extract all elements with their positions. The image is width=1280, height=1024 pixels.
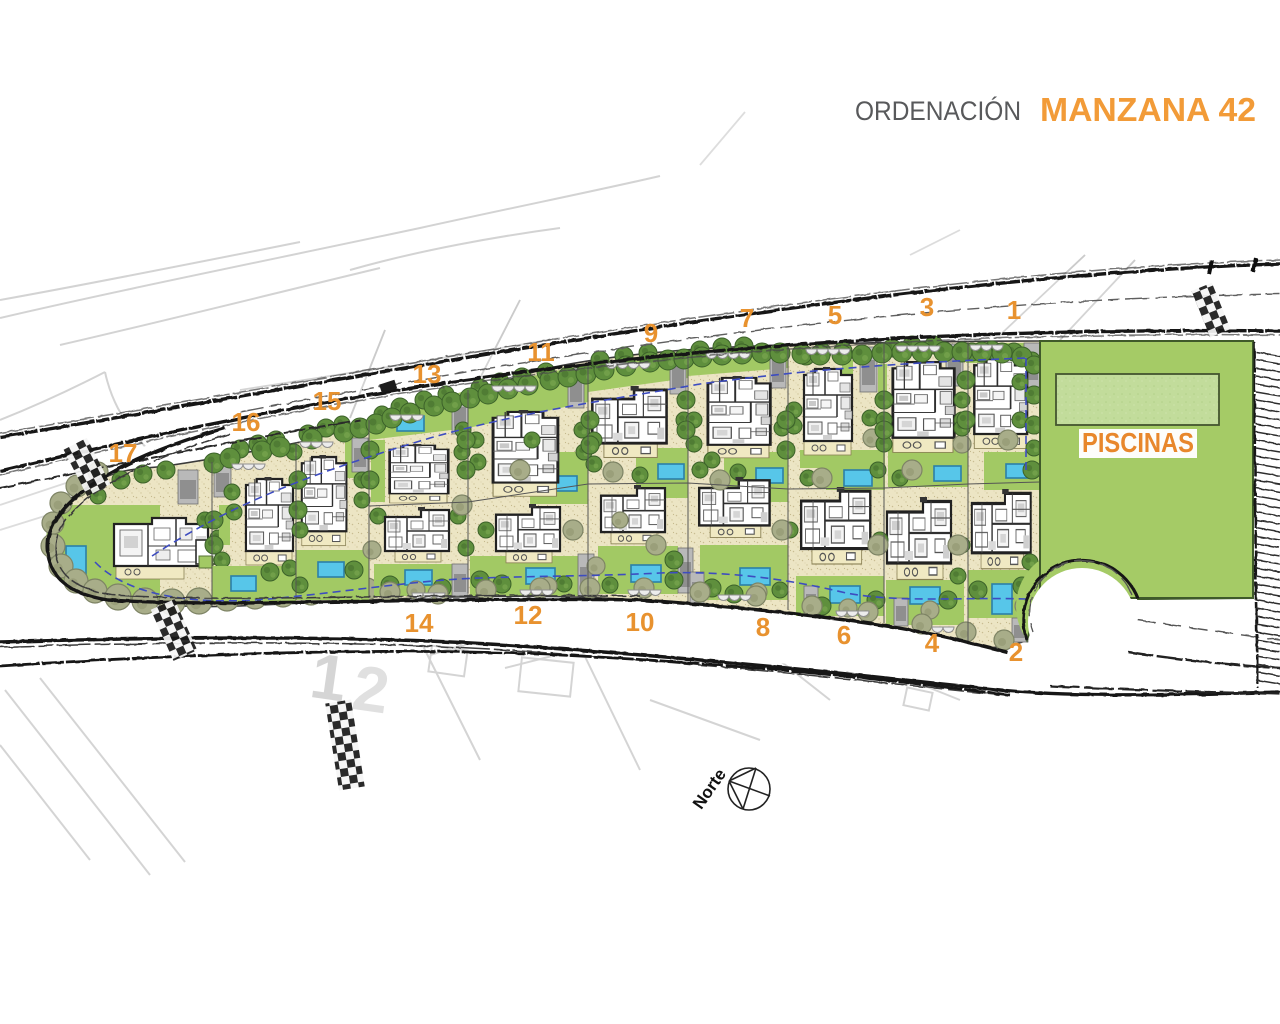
- svg-text:14: 14: [405, 608, 434, 638]
- svg-text:16: 16: [232, 407, 261, 437]
- svg-text:PISCINAS: PISCINAS: [1082, 427, 1194, 458]
- svg-text:4: 4: [925, 628, 940, 658]
- svg-text:10: 10: [626, 607, 655, 637]
- svg-text:6: 6: [837, 620, 851, 650]
- svg-text:ORDENACIÓN: ORDENACIÓN: [855, 95, 1021, 126]
- svg-text:8: 8: [756, 612, 770, 642]
- svg-text:15: 15: [313, 386, 342, 416]
- svg-text:9: 9: [644, 318, 658, 348]
- svg-text:MANZANA 42: MANZANA 42: [1040, 91, 1256, 128]
- svg-text:17: 17: [109, 438, 138, 468]
- svg-text:1: 1: [1007, 295, 1021, 325]
- svg-text:13: 13: [413, 359, 442, 389]
- svg-text:5: 5: [828, 300, 842, 330]
- svg-text:7: 7: [740, 303, 754, 333]
- svg-text:3: 3: [920, 292, 934, 322]
- svg-text:2: 2: [1009, 637, 1023, 667]
- svg-text:11: 11: [527, 337, 555, 367]
- svg-text:12: 12: [514, 600, 543, 630]
